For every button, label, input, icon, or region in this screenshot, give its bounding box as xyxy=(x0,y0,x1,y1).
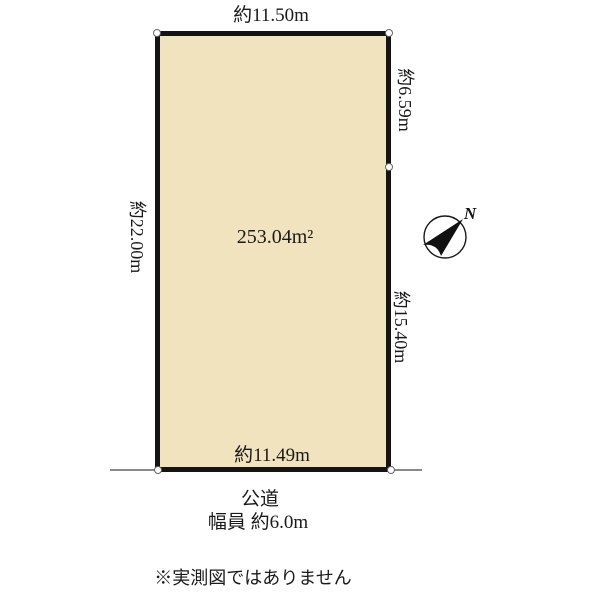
road-edge-line-left xyxy=(110,469,155,471)
corner-marker-bottom-right xyxy=(387,466,395,474)
plot-area-label: 253.04m² xyxy=(175,226,375,248)
land-plot-diagram: 約11.50m 約22.00m 約6.59m 約15.40m 約11.49m 2… xyxy=(0,0,600,600)
disclaimer-note: ※実測図ではありません xyxy=(103,566,403,590)
compass-north-letter: N xyxy=(463,204,477,223)
road-name-label: 公道 xyxy=(160,489,360,511)
road-edge-line-right xyxy=(391,469,422,471)
north-compass: N xyxy=(405,200,485,270)
corner-marker-top-left xyxy=(153,29,161,37)
dimension-right-upper: 約6.59m xyxy=(394,40,416,160)
dimension-top: 約11.50m xyxy=(171,5,371,27)
road-width-label: 幅員 約6.0m xyxy=(158,512,358,534)
land-plot-outline xyxy=(155,31,391,472)
dimension-bottom: 約11.49m xyxy=(172,445,372,467)
corner-marker-right-middle xyxy=(385,163,393,171)
corner-marker-top-right xyxy=(385,29,393,37)
corner-marker-bottom-left xyxy=(154,466,162,474)
dimension-right-lower: 約15.40m xyxy=(390,267,412,387)
dimension-left: 約22.00m xyxy=(126,177,148,297)
